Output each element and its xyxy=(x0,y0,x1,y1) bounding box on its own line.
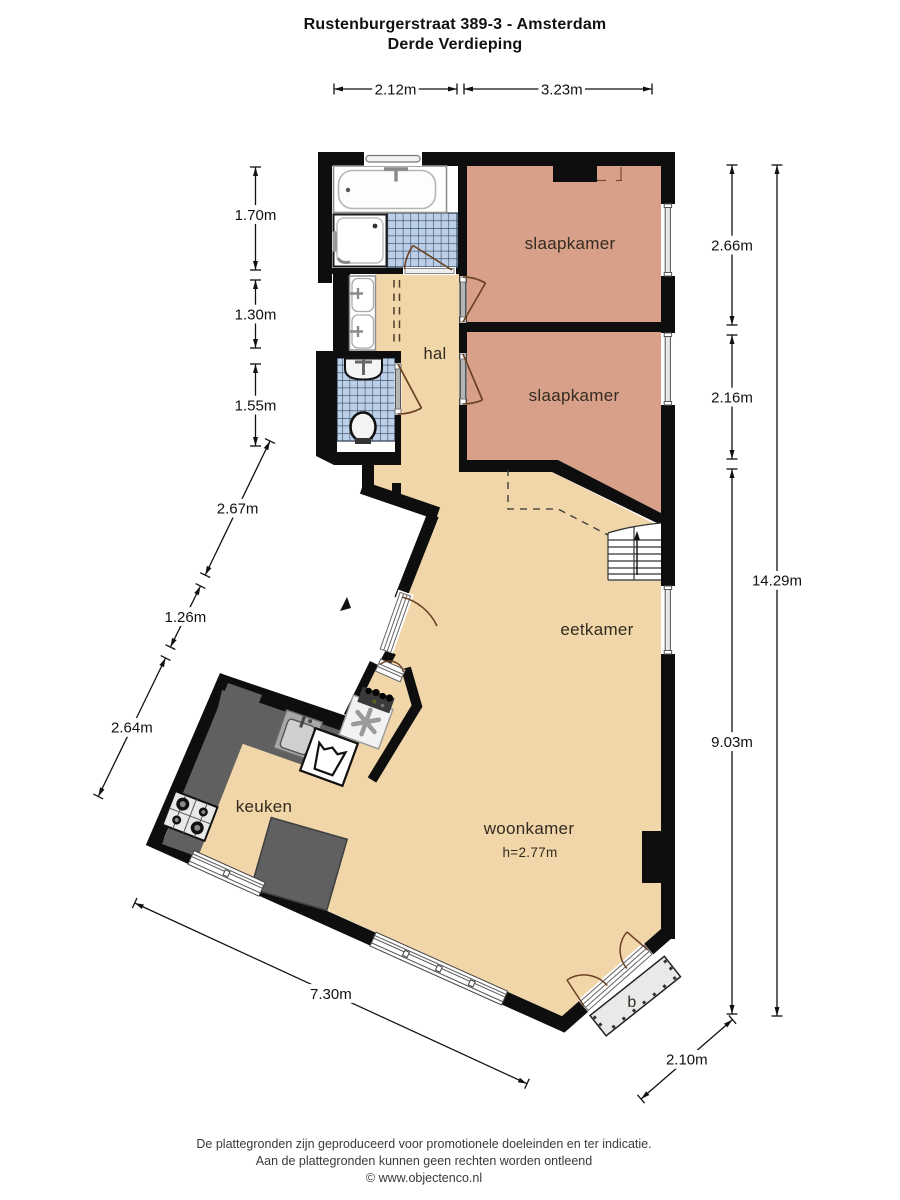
svg-text:2.64m: 2.64m xyxy=(111,720,153,737)
svg-text:2.12m: 2.12m xyxy=(375,81,417,98)
svg-text:1.70m: 1.70m xyxy=(235,207,277,224)
svg-text:1.26m: 1.26m xyxy=(165,609,207,626)
svg-text:3.23m: 3.23m xyxy=(541,81,583,98)
svg-text:woonkamer: woonkamer xyxy=(483,819,575,838)
svg-text:© www.objectenco.nl: © www.objectenco.nl xyxy=(366,1171,482,1185)
svg-text:Rustenburgerstraat 389-3 - Ams: Rustenburgerstraat 389-3 - Amsterdam xyxy=(304,16,607,33)
svg-text:Derde Verdieping: Derde Verdieping xyxy=(388,36,523,53)
svg-text:h=2.77m: h=2.77m xyxy=(502,845,557,860)
svg-text:1.30m: 1.30m xyxy=(235,306,277,323)
svg-text:2.66m: 2.66m xyxy=(711,237,753,254)
svg-text:9.03m: 9.03m xyxy=(711,734,753,751)
svg-text:De plattegronden zijn geproduc: De plattegronden zijn geproduceerd voor … xyxy=(196,1137,651,1151)
svg-text:hal: hal xyxy=(424,345,447,363)
svg-text:Aan de plattegronden kunnen ge: Aan de plattegronden kunnen geen rechten… xyxy=(256,1154,592,1168)
svg-text:eetkamer: eetkamer xyxy=(560,620,633,639)
svg-text:2.10m: 2.10m xyxy=(666,1052,708,1069)
svg-text:slaapkamer: slaapkamer xyxy=(529,386,620,405)
svg-text:2.16m: 2.16m xyxy=(711,389,753,406)
svg-text:1.55m: 1.55m xyxy=(235,397,277,414)
svg-text:2.67m: 2.67m xyxy=(217,501,259,518)
svg-text:7.30m: 7.30m xyxy=(310,986,352,1003)
svg-text:b: b xyxy=(627,994,636,1011)
svg-text:keuken: keuken xyxy=(236,797,293,816)
svg-text:slaapkamer: slaapkamer xyxy=(525,234,616,253)
svg-text:14.29m: 14.29m xyxy=(752,573,802,590)
